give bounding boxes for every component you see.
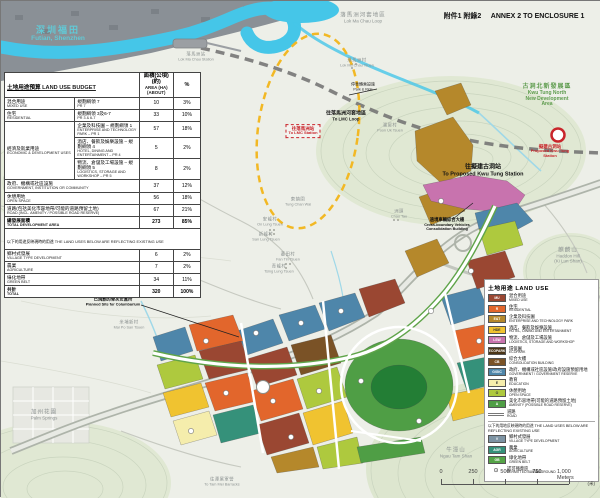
budget-pr-cell: 企業及科技園 – 規劃綱領 1ENTERPRISE AND TECHNOLOGY… <box>75 121 139 137</box>
label-en: GOVERNMENT / GOVERNMENT RESERVE <box>509 373 588 377</box>
scale-tick-label: 500 <box>500 469 509 475</box>
budget-category-cell: 休憩用地OPEN SPACE <box>5 192 140 204</box>
legend-item-agr: AGR農業AGRICULTURE <box>488 446 595 454</box>
legend-swatch: MU <box>488 294 506 302</box>
budget-pct-value: 2% <box>173 249 200 261</box>
legend-item-ecopark: ECOPARK環保園ECOPARK <box>488 347 595 355</box>
budget-area-value: 273 <box>139 216 173 228</box>
budget-category-cell: 共計TOTAL <box>5 286 140 298</box>
budget-pct-value: 10% <box>173 109 200 121</box>
budget-category-cell: 經濟及就業用途ECONOMIC & DEVELOPMENT USES <box>5 121 75 180</box>
label-en: AGRICULTURE <box>509 450 533 454</box>
budget-area-value: 37 <box>139 180 173 192</box>
scale-tick <box>441 479 442 484</box>
label-en: OPEN SPACE <box>7 199 137 203</box>
label-en: AGRICULTURE <box>7 268 137 272</box>
label-en: EDUCATION <box>509 383 529 387</box>
label-en: LOGISTICS, STORAGE AND WORKSHOP <box>509 341 575 345</box>
budget-area-value: 67 <box>139 204 173 216</box>
budget-category-cell: 道路(包括美化市容地帶/可能的道路預留土地)ROAD (INCL. AMENIT… <box>5 204 140 216</box>
legend-item-et: E&T企業及科技園ENTERPRISE AND TECHNOLOGY PARK <box>488 315 595 323</box>
label-en: ENTERPRISE AND TECHNOLOGY PARK <box>509 320 573 324</box>
budget-pct-value: 2% <box>173 261 200 273</box>
budget-area-value: 57 <box>139 121 173 137</box>
legend-label: 住宅RESIDENTIAL <box>509 305 531 313</box>
label-en: GREEN BELT <box>7 280 137 284</box>
legend-item-o: O休憩用地OPEN SPACE <box>488 389 595 397</box>
legend-band: 以下的用地反映現時的用途 THE LAND USES BELOW ARE REF… <box>488 421 595 433</box>
legend-swatch: E&T <box>488 315 506 323</box>
budget-category-cell: 鄉村式發展VILLAGE TYPE DEVELOPMENT <box>5 249 140 261</box>
budget-row: 道路(包括美化市容地帶/可能的道路預留土地)ROAD (INCL. AMENIT… <box>5 204 201 216</box>
budget-band-row: 以下的用途反映現時的用途 THE LAND USES BELOW ARE REF… <box>5 228 201 249</box>
label-en: RESIDENTIAL <box>509 309 531 313</box>
legend-label: 美化市容地帶(可能的道路預留土地)AMENITY (POSSIBLE ROAD … <box>509 399 576 407</box>
legend-item-e: E教育EDUCATION <box>488 378 595 386</box>
legend-swatch: G/GIC <box>488 368 506 376</box>
label-cn: 以下的用途反映現時的用途 <box>7 239 54 244</box>
legend-swatch: HDE <box>488 326 506 334</box>
road-line <box>488 413 504 414</box>
legend-swatch: LSW <box>488 336 506 344</box>
budget-area-value: 320 <box>139 286 173 298</box>
budget-pct-value: 2% <box>173 137 200 158</box>
map-canvas: 深圳福田Futian, Shenzhen落馬洲河套地區Lok Ma Chau L… <box>0 0 600 497</box>
budget-row: 經濟及就業用途ECONOMIC & DEVELOPMENT USES企業及科技園… <box>5 121 201 137</box>
label-cn: 酒店、餐飲及娛樂設施 – 規劃綱領 4 <box>77 139 136 149</box>
legend-swatch: ECOPARK <box>488 347 506 355</box>
legend-swatch: A <box>488 400 506 408</box>
budget-pct-value: 18% <box>173 121 200 137</box>
label-en: LOGISTICS, STORAGE AND WORKSHOP – PR 5 <box>77 170 136 178</box>
budget-area-value: 10 <box>139 97 173 109</box>
budget-category-cell: 總發展面積TOTAL DEVELOPMENT AREA <box>5 216 140 228</box>
legend-item-cb: CB綜合大樓CONSOLIDATION BUILDING <box>488 357 595 365</box>
legend-swatch: GB <box>488 456 506 464</box>
scale-tick-label: 750 <box>532 469 541 475</box>
budget-pct-value: 11% <box>173 274 200 286</box>
legend-swatch: E <box>488 379 506 387</box>
scale-bar-line <box>441 478 569 485</box>
scale-tick <box>569 479 570 484</box>
budget-category-cell: 住宅RESIDENTIAL <box>5 109 75 121</box>
label-en: ENTERPRISE AND TECHNOLOGY PARK – PR 1 <box>77 128 136 136</box>
budget-area-value: 33 <box>139 109 173 121</box>
legend-label: 政府、機構或社區設施/政府設施預留用地GOVERNMENT / GOVERNME… <box>509 368 588 376</box>
legend-item-a: A美化市容地帶(可能的道路預留土地)AMENITY (POSSIBLE ROAD… <box>488 399 595 407</box>
legend-label: 鄉村式發展VILLAGE TYPE DEVELOPMENT <box>509 435 559 443</box>
label-en: MIXED USE <box>509 299 528 303</box>
legend-item-ggic: G/GIC政府、機構或社區設施/政府設施預留用地GOVERNMENT / GOV… <box>488 368 595 376</box>
scale-tick <box>473 479 474 484</box>
budget-area-value: 5 <box>139 137 173 158</box>
budget-title-cell: 土地用途預算 LAND USE BUDGET <box>5 73 140 98</box>
budget-pr-cell: 規劃綱領 7PR 7 <box>75 97 139 109</box>
legend-label: 酒店、餐飲及娛樂設施HOTEL, DINING AND ENTERTAINMEN… <box>509 326 571 334</box>
label-en: OPEN SPACE <box>509 394 531 398</box>
budget-area-value: 6 <box>139 249 173 261</box>
legend-label: 物流、倉儲及工場設施LOGISTICS, STORAGE AND WORKSHO… <box>509 336 575 344</box>
legend-item-v: V鄉村式發展VILLAGE TYPE DEVELOPMENT <box>488 435 595 443</box>
legend-item-r: R住宅RESIDENTIAL <box>488 305 595 313</box>
label-en: AMENITY (POSSIBLE ROAD RESERVE) <box>509 404 576 408</box>
label-en: TOTAL DEVELOPMENT AREA <box>7 223 137 227</box>
legend-swatch: CB <box>488 358 506 366</box>
budget-row: 農業AGRICULTURE72% <box>5 261 201 273</box>
budget-area-value: 8 <box>139 159 173 180</box>
budget-row: 政府、機構或社區設施GOVERNMENT, INSTITUTION OR COM… <box>5 180 201 192</box>
budget-pct-value: 3% <box>173 97 200 109</box>
scale-bar: 02505007501,000 Meters (米) <box>441 469 593 489</box>
legend-item-lsw: LSW物流、倉儲及工場設施LOGISTICS, STORAGE AND WORK… <box>488 336 595 344</box>
budget-area-value: 7 <box>139 261 173 273</box>
scale-tick <box>505 479 506 484</box>
label-en: MIXED USE <box>7 104 72 108</box>
land-use-legend: 土地用途 LAND USE MU混合用途MIXED USER住宅RESIDENT… <box>484 279 599 482</box>
scale-tick <box>537 479 538 484</box>
label-en: ROAD <box>507 415 517 419</box>
legend-swatch: V <box>488 435 506 443</box>
budget-row: 共計TOTAL320100% <box>5 286 201 298</box>
land-use-budget-table: 土地用途預算 LAND USE BUDGET面積(公頃)(約)AREA (HA)… <box>4 72 201 298</box>
budget-pct-header: % <box>173 73 200 98</box>
legend-label: 教育EDUCATION <box>509 378 529 386</box>
budget-area-value: 56 <box>139 192 173 204</box>
budget-category-cell: 綠化地帶GREEN BELT <box>5 274 140 286</box>
budget-area-header: 面積(公頃)(約)AREA (HA)(ABOUT) <box>139 73 173 98</box>
label-en: THE LAND USES BELOW ARE REFLECTING EXIST… <box>54 239 164 244</box>
legend-swatch: AGR <box>488 446 506 454</box>
label-cn: 土地用途預算 <box>7 85 41 91</box>
budget-pct-value: 18% <box>173 192 200 204</box>
budget-pct-value: 100% <box>173 286 200 298</box>
legend-items: MU混合用途MIXED USER住宅RESIDENTIALE&T企業及科技園EN… <box>488 294 595 475</box>
scale-unit: (米) <box>588 481 596 487</box>
label-en: HOTEL, DINING AND ENTERTAINMENT <box>509 330 571 334</box>
label-en: PR 7 <box>77 104 136 108</box>
legend-label: 混合用途MIXED USE <box>509 294 528 302</box>
label-en: RESIDENTIAL <box>7 116 72 120</box>
budget-row: 住宅RESIDENTIAL規劃綱領 3及6-7PR 3 & 6-73310% <box>5 109 201 121</box>
budget-row: 綠化地帶GREEN BELT3411% <box>5 274 201 286</box>
legend-item-hde: HDE酒店、餐飲及娛樂設施HOTEL, DINING AND ENTERTAIN… <box>488 326 595 334</box>
budget-row: 總發展面積TOTAL DEVELOPMENT AREA27385% <box>5 216 201 228</box>
budget-band-cell: 以下的用途反映現時的用途 THE LAND USES BELOW ARE REF… <box>5 228 201 249</box>
proposed-kwu-tung-station-marker <box>552 129 565 142</box>
legend-title: 土地用途 LAND USE <box>488 283 595 292</box>
label-en: VILLAGE TYPE DEVELOPMENT <box>509 440 559 444</box>
legend-swatch: R <box>488 305 506 313</box>
scale-tick-label: 250 <box>468 469 477 475</box>
budget-category-cell: 政府、機構或社區設施GOVERNMENT, INSTITUTION OR COM… <box>5 180 140 192</box>
label-en: GOVERNMENT, INSTITUTION OR COMMUNITY <box>7 186 137 190</box>
road-line <box>488 415 504 416</box>
budget-pct-value: 2% <box>173 159 200 180</box>
label-en: TOTAL <box>7 292 137 296</box>
budget-row: 休憩用地OPEN SPACE5618% <box>5 192 201 204</box>
label-en: GREEN BELT <box>509 461 530 465</box>
label-en: PR 3 & 6-7 <box>77 116 136 120</box>
legend-swatch: O <box>488 389 506 397</box>
budget-pr-cell: 物流、倉儲及工場設施 – 規劃綱領 5LOGISTICS, STORAGE AN… <box>75 159 139 180</box>
label-en: ROAD (INCL. AMENITY / POSSIBLE ROAD RESE… <box>7 211 137 215</box>
legend-label: 環保園ECOPARK <box>509 347 525 355</box>
legend-label: 企業及科技園ENTERPRISE AND TECHNOLOGY PARK <box>509 315 573 323</box>
legend-label: 綜合大樓CONSOLIDATION BUILDING <box>509 357 554 365</box>
budget-pr-cell: 規劃綱領 3及6-7PR 3 & 6-7 <box>75 109 139 121</box>
road-symbol <box>488 411 504 417</box>
budget-pr-cell: 酒店、餐飲及娛樂設施 – 規劃綱領 4HOTEL, DINING AND ENT… <box>75 137 139 158</box>
label-en: LAND USE BUDGET <box>41 85 96 91</box>
legend-label: 綠化地帶GREEN BELT <box>509 456 530 464</box>
budget-area-value: 34 <box>139 274 173 286</box>
label-en: VILLAGE TYPE DEVELOPMENT <box>7 256 137 260</box>
label-en: AREA (HA)(ABOUT) <box>142 86 171 96</box>
budget-header-row: 土地用途預算 LAND USE BUDGET面積(公頃)(約)AREA (HA)… <box>5 73 201 98</box>
legend-label: 農業AGRICULTURE <box>509 446 533 454</box>
budget-pct-value: 12% <box>173 180 200 192</box>
legend-label: 休憩用地OPEN SPACE <box>509 389 531 397</box>
budget-category-cell: 農業AGRICULTURE <box>5 261 140 273</box>
legend-item: 道路ROAD <box>488 410 595 418</box>
label-en: ECONOMIC & DEVELOPMENT USES <box>7 151 72 155</box>
label-en: ECOPARK <box>509 351 525 355</box>
legend-label: 道路ROAD <box>507 410 517 418</box>
label-cn: 物流、倉儲及工場設施 – 規劃綱領 5 <box>77 160 136 170</box>
scale-tick-label: 0 <box>439 469 442 475</box>
budget-row: 混合用途MIXED USE規劃綱領 7PR 7103% <box>5 97 201 109</box>
budget-pct-value: 85% <box>173 216 200 228</box>
legend-item-gb: GB綠化地帶GREEN BELT <box>488 456 595 464</box>
budget-row: 鄉村式發展VILLAGE TYPE DEVELOPMENT62% <box>5 249 201 261</box>
budget-category-cell: 混合用途MIXED USE <box>5 97 75 109</box>
legend-item-mu: MU混合用途MIXED USE <box>488 294 595 302</box>
label-en: HOTEL, DINING AND ENTERTAINMENT – PR 4 <box>77 149 136 157</box>
label-en: CONSOLIDATION BUILDING <box>509 362 554 366</box>
scale-labels: 02505007501,000 Meters <box>441 469 593 478</box>
budget-pct-value: 21% <box>173 204 200 216</box>
